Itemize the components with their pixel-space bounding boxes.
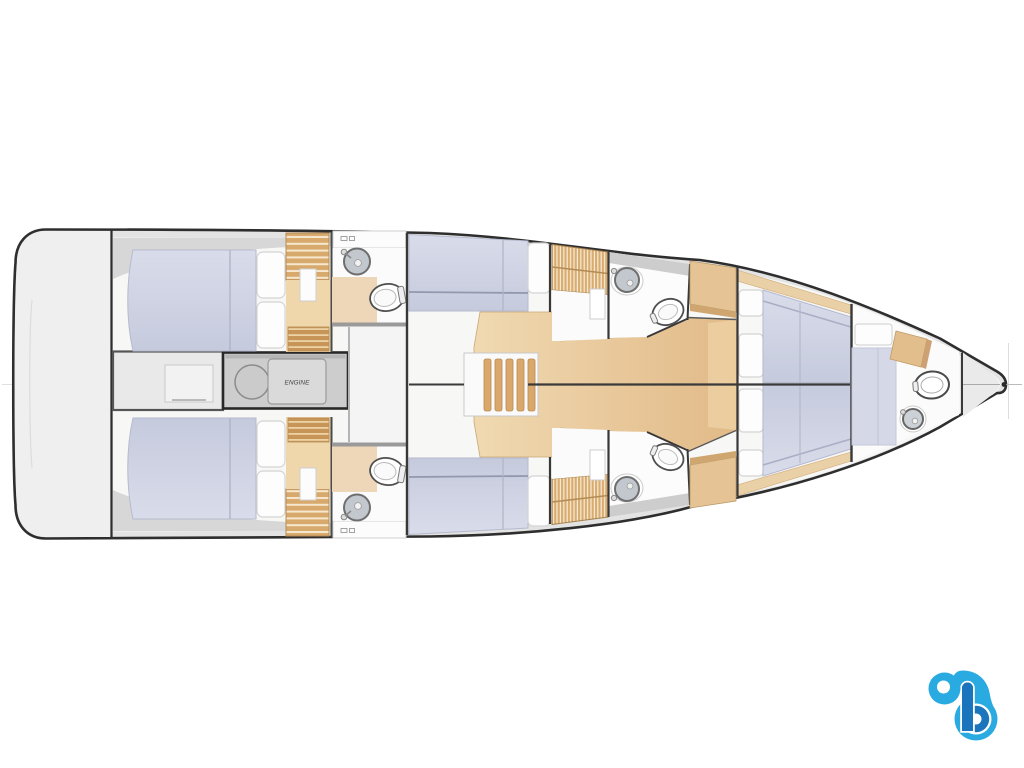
svg-text:ENGINE: ENGINE — [285, 380, 311, 387]
